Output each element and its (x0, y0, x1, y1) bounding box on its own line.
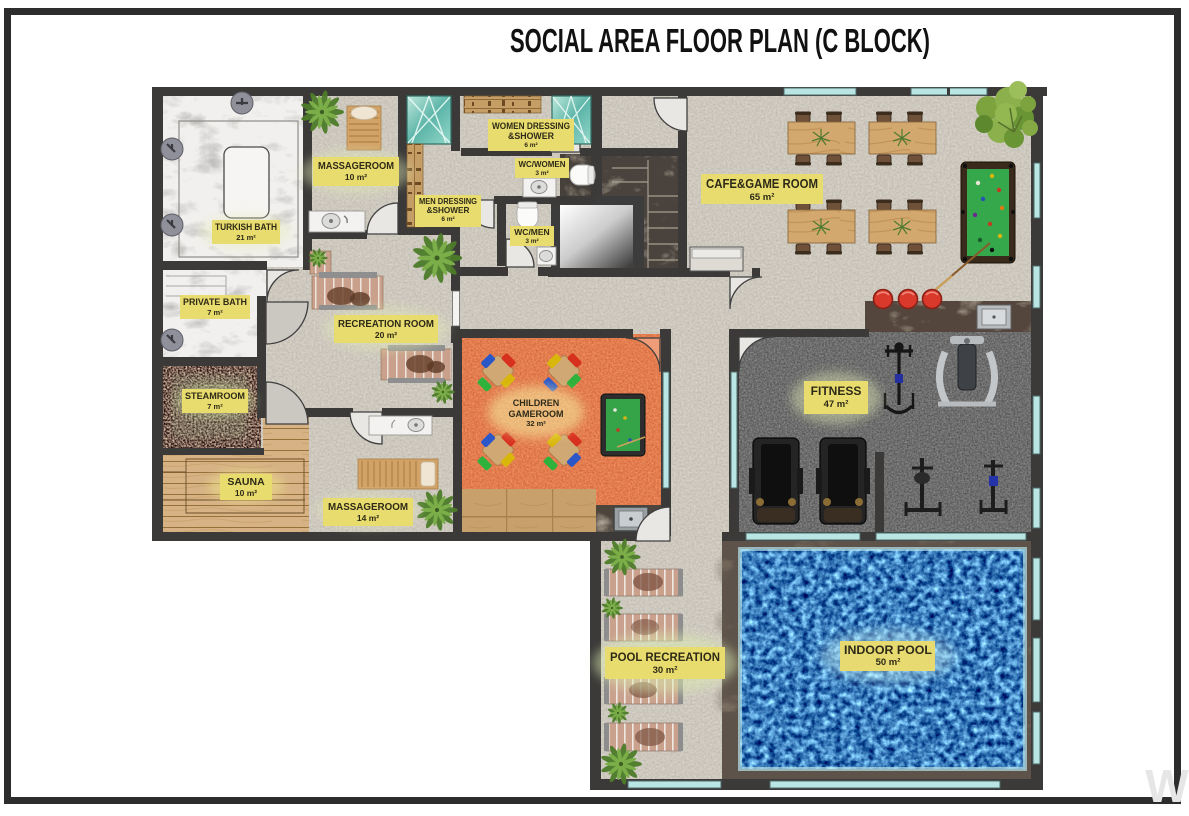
svg-text:6 m²: 6 m² (441, 216, 455, 223)
svg-text:WOMEN DRESSING: WOMEN DRESSING (492, 121, 570, 131)
svg-text:TURKISH BATH: TURKISH BATH (215, 222, 277, 233)
svg-text:PRIVATE BATH: PRIVATE BATH (183, 297, 247, 308)
svg-text:7 m²: 7 m² (207, 308, 223, 317)
svg-text:14 m²: 14 m² (357, 513, 379, 523)
svg-text:MEN DRESSING: MEN DRESSING (419, 197, 477, 206)
svg-text:INDOOR POOL: INDOOR POOL (844, 643, 932, 657)
svg-text:RECREATION ROOM: RECREATION ROOM (338, 318, 434, 330)
svg-text:20 m²: 20 m² (375, 330, 397, 340)
svg-text:10 m²: 10 m² (345, 172, 367, 182)
svg-text:WC/MEN: WC/MEN (514, 227, 549, 237)
svg-text:32 m²: 32 m² (526, 419, 546, 428)
svg-text:&SHOWER: &SHOWER (508, 131, 555, 141)
svg-text:50 m²: 50 m² (876, 657, 901, 668)
svg-text:WC/WOMEN: WC/WOMEN (519, 159, 566, 169)
svg-text:MASSAGEROOM: MASSAGEROOM (318, 161, 394, 172)
svg-text:3 m²: 3 m² (525, 238, 539, 245)
svg-text:STEAMROOM: STEAMROOM (185, 391, 245, 402)
svg-text:10 m²: 10 m² (235, 488, 257, 498)
svg-text:GAMEROOM: GAMEROOM (509, 409, 564, 419)
svg-text:CAFE&GAME ROOM: CAFE&GAME ROOM (706, 177, 818, 191)
svg-text:3 m²: 3 m² (535, 170, 549, 177)
svg-text:FITNESS: FITNESS (811, 384, 862, 398)
svg-text:6 m²: 6 m² (524, 142, 538, 149)
svg-text:CHILDREN: CHILDREN (513, 398, 560, 408)
svg-text:47 m²: 47 m² (824, 399, 849, 410)
svg-text:30 m²: 30 m² (653, 665, 678, 676)
svg-text:&SHOWER: &SHOWER (427, 206, 470, 215)
svg-text:7 m²: 7 m² (207, 402, 223, 411)
svg-text:MASSAGEROOM: MASSAGEROOM (328, 501, 408, 513)
svg-text:21 m²: 21 m² (236, 233, 256, 242)
svg-text:SAUNA: SAUNA (227, 476, 265, 488)
svg-text:W: W (1145, 760, 1189, 812)
svg-text:65 m²: 65 m² (750, 192, 775, 203)
svg-text:SOCIAL AREA FLOOR PLAN (C BLO: SOCIAL AREA FLOOR PLAN (C BLOCK) (510, 22, 930, 59)
svg-text:POOL RECREATION: POOL RECREATION (610, 650, 720, 664)
